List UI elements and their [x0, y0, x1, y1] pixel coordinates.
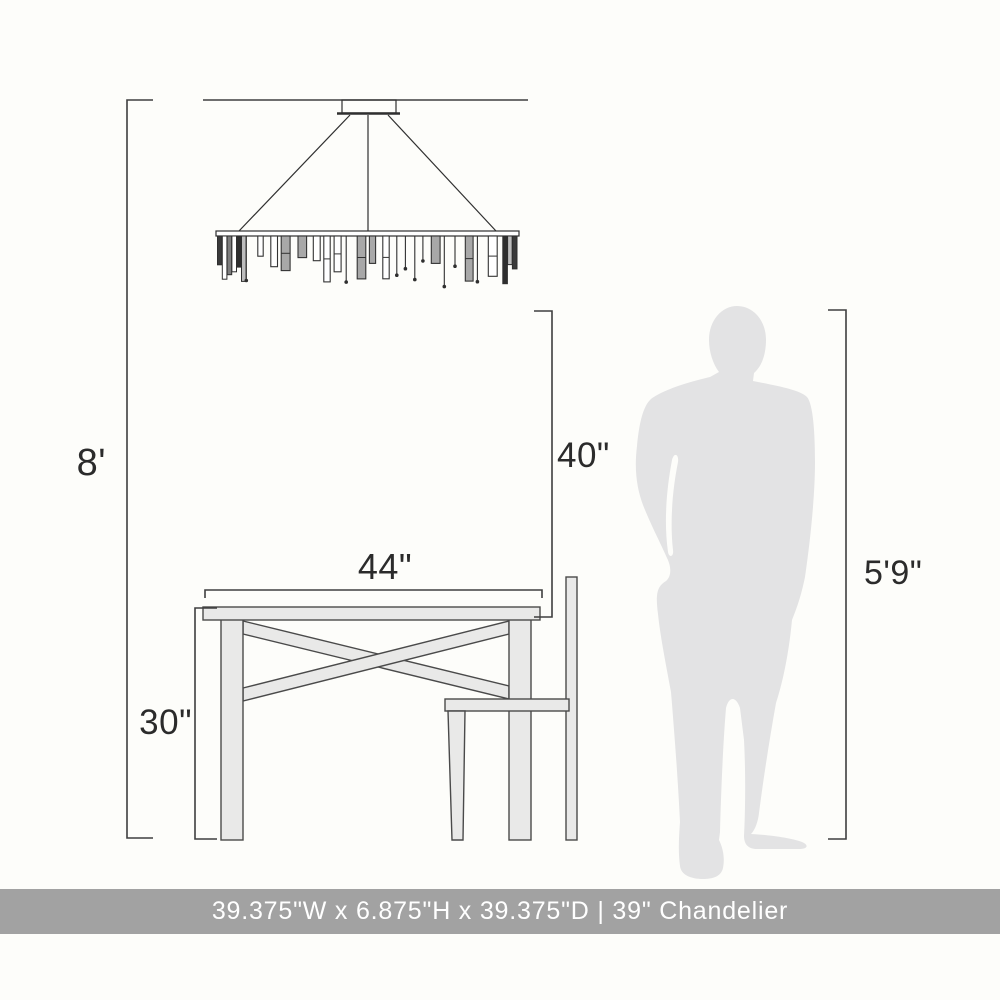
person-silhouette: [636, 306, 815, 879]
crystal-rods: [218, 236, 518, 288]
dim-line-5ft9: [828, 310, 846, 839]
dim-line-40in: [534, 311, 552, 617]
dim-line-44in: [205, 590, 542, 598]
chandelier-ring: [216, 231, 519, 236]
table-leg-left: [221, 618, 243, 840]
caption-bar: 39.375"W x 6.875"H x 39.375"D | 39" Chan…: [0, 889, 1000, 934]
suspension-wires: [239, 115, 496, 231]
label-person-height: 5'9": [864, 556, 922, 590]
size-comparison-diagram: 8' 40" 44" 30" 5'9" 39.375"W x 6.875"H x…: [0, 0, 1000, 1000]
label-ceiling-height: 8': [50, 444, 106, 482]
label-table-width: 44": [340, 549, 430, 585]
label-hang-clearance: 40": [557, 438, 610, 473]
table-drawing: [203, 607, 540, 840]
dim-line-30in: [195, 608, 217, 839]
chair-front-leg: [448, 711, 465, 840]
caption-text: 39.375"W x 6.875"H x 39.375"D | 39" Chan…: [212, 897, 788, 926]
chair-seat: [445, 699, 569, 711]
table-leg-right: [509, 618, 531, 840]
chandelier-drawing: [216, 100, 519, 288]
label-table-height: 30": [136, 705, 192, 740]
diagram-artwork: [0, 0, 1000, 1000]
table-top: [203, 607, 540, 620]
canopy: [342, 100, 396, 113]
